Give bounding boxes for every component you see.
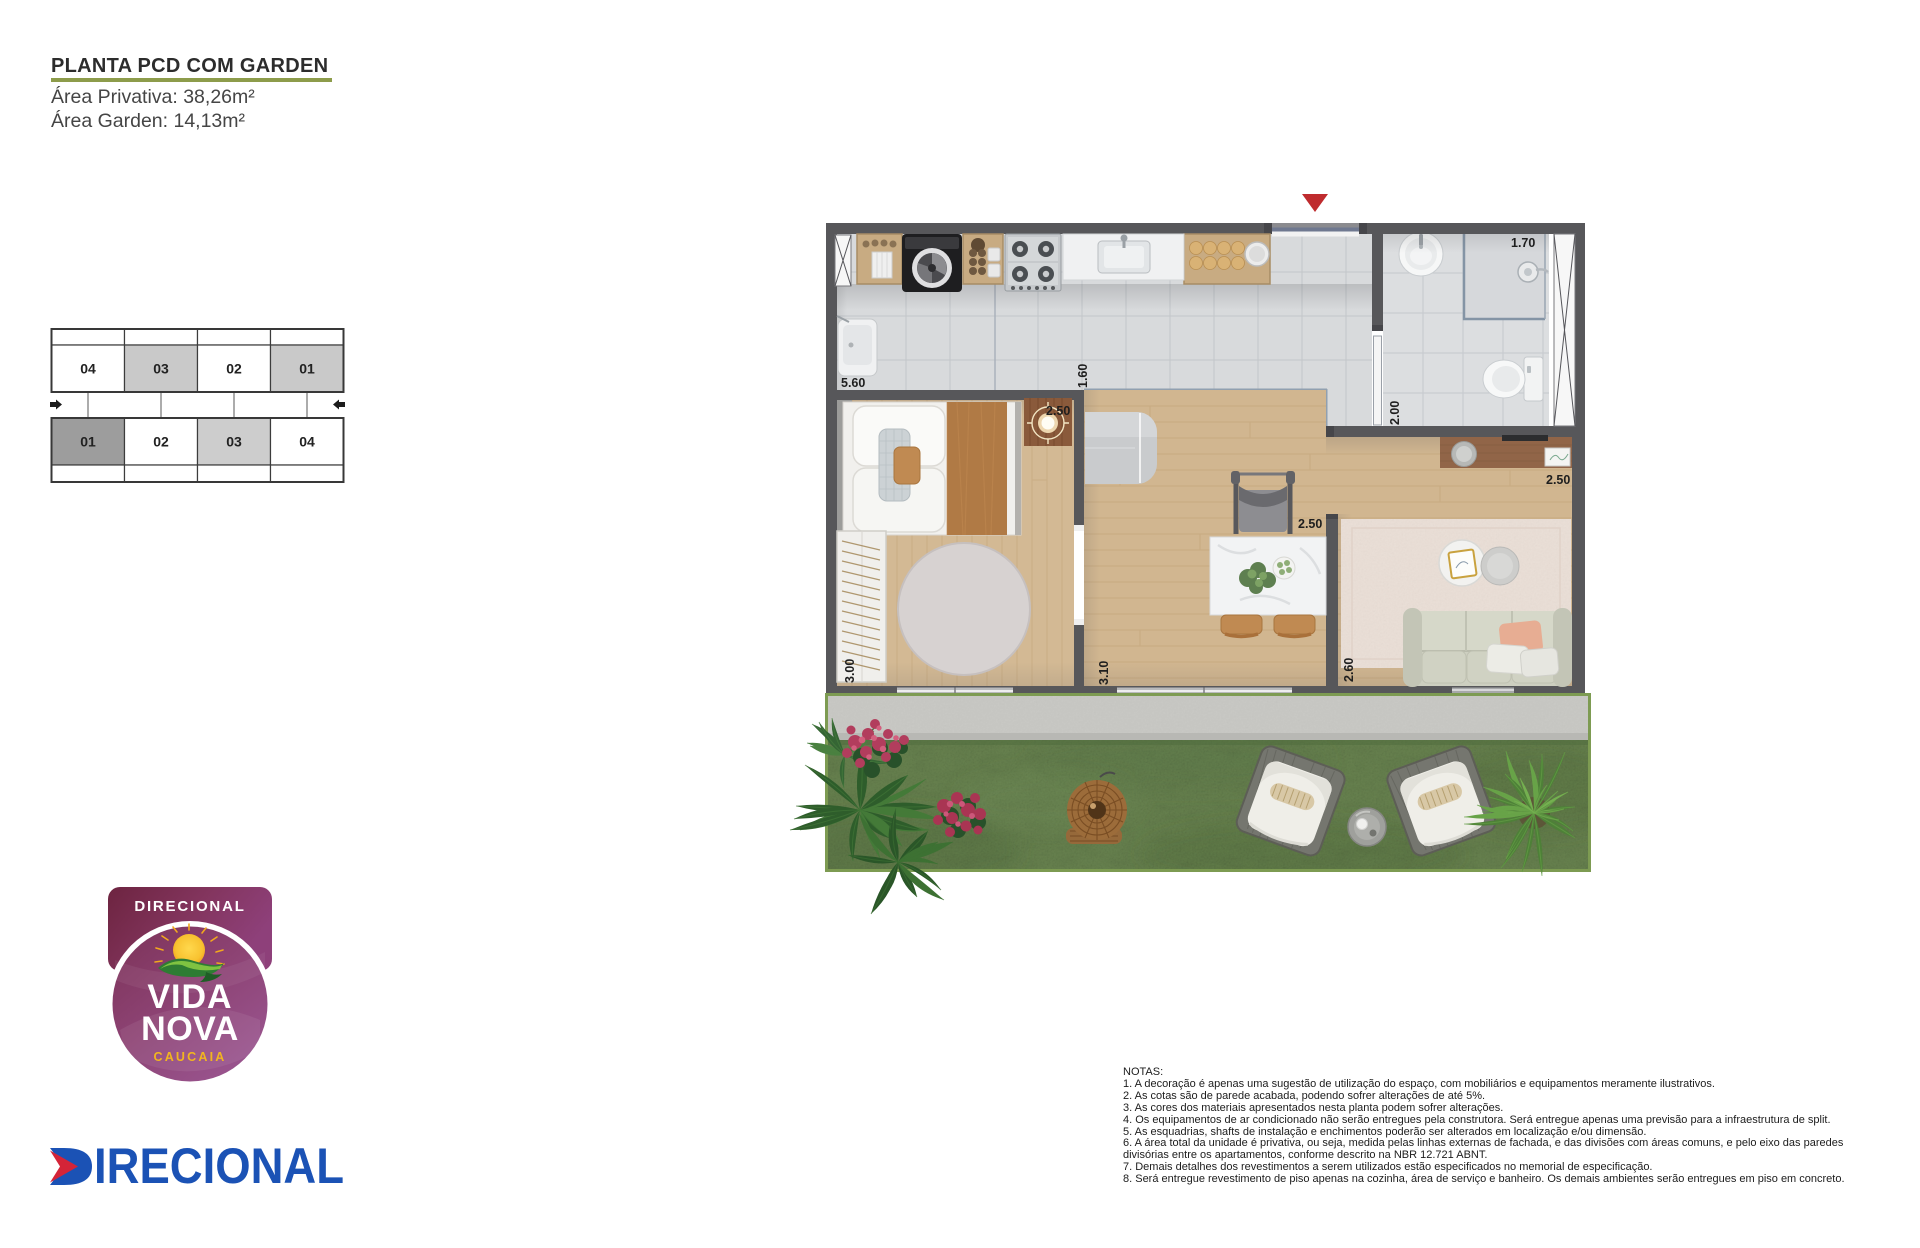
svg-text:DIRECIONAL: DIRECIONAL [134,898,245,915]
svg-text:2.50: 2.50 [1546,473,1570,487]
svg-text:2.50: 2.50 [1046,404,1070,418]
svg-text:01: 01 [299,361,315,377]
svg-text:IRECIONAL: IRECIONAL [94,1138,344,1194]
svg-text:CAUCAIA: CAUCAIA [153,1050,226,1064]
svg-text:01: 01 [80,434,96,450]
svg-text:03: 03 [153,361,169,377]
svg-text:5.60: 5.60 [841,376,865,390]
svg-text:02: 02 [226,361,242,377]
svg-text:04: 04 [80,361,96,377]
svg-text:04: 04 [299,434,315,450]
svg-text:3.00: 3.00 [843,659,857,683]
svg-text:02: 02 [153,434,169,450]
svg-text:1.60: 1.60 [1076,364,1090,388]
svg-text:2.50: 2.50 [1298,517,1322,531]
svg-text:2.00: 2.00 [1388,401,1402,425]
svg-text:1.70: 1.70 [1511,236,1535,250]
svg-text:NOVA: NOVA [141,1010,239,1048]
svg-text:2.60: 2.60 [1342,658,1356,682]
svg-text:3.10: 3.10 [1097,661,1111,685]
svg-text:03: 03 [226,434,242,450]
